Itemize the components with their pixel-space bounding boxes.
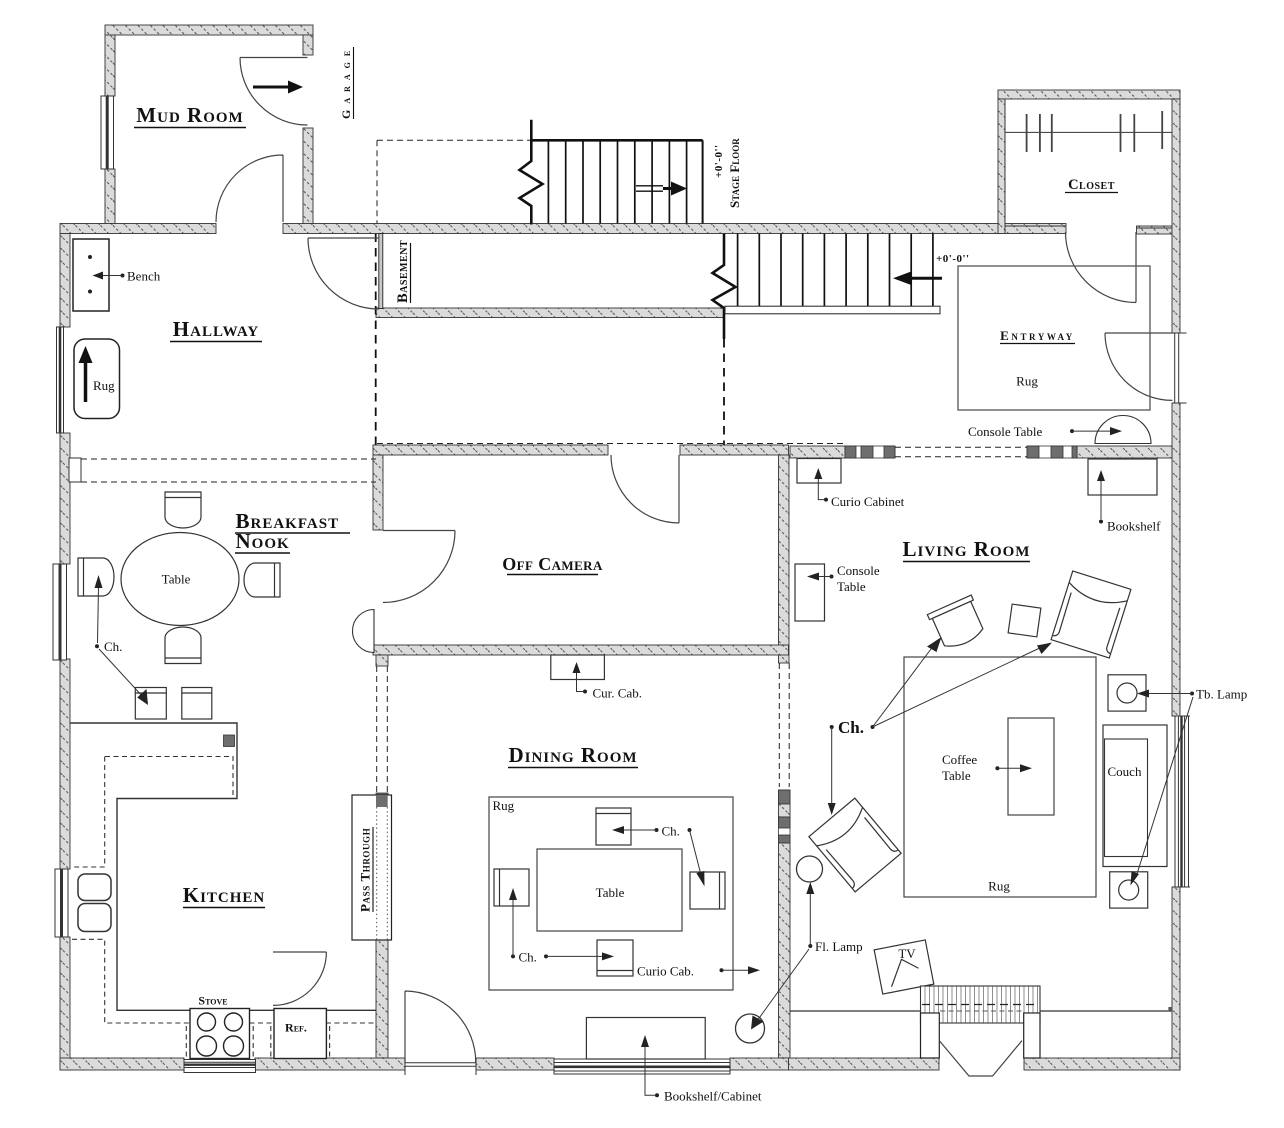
svg-text:Console: Console — [837, 563, 880, 578]
svg-text:Table: Table — [162, 572, 191, 587]
svg-text:Bookshelf/Cabinet: Bookshelf/Cabinet — [664, 1089, 762, 1104]
svg-text:Curio Cabinet: Curio Cabinet — [831, 494, 905, 509]
svg-text:Nook: Nook — [236, 529, 290, 553]
svg-text:Stage Floor: Stage Floor — [727, 138, 742, 208]
svg-text:Garage: Garage — [339, 45, 353, 119]
svg-text:Off Camera: Off Camera — [502, 554, 603, 574]
svg-text:Kitchen: Kitchen — [183, 883, 266, 907]
svg-text:Couch: Couch — [1108, 764, 1142, 779]
svg-text:Hallway: Hallway — [173, 317, 259, 341]
svg-text:Stove: Stove — [198, 994, 227, 1008]
svg-text:Rug: Rug — [988, 879, 1010, 894]
svg-text:Console Table: Console Table — [968, 424, 1043, 439]
svg-text:Ref.: Ref. — [285, 1021, 307, 1035]
svg-text:Table: Table — [596, 885, 625, 900]
svg-text:Fl. Lamp: Fl. Lamp — [815, 939, 863, 954]
svg-text:TV: TV — [898, 946, 916, 961]
svg-text:Coffee: Coffee — [942, 752, 977, 767]
svg-text:Living Room: Living Room — [903, 537, 1031, 561]
svg-text:Ch.: Ch. — [838, 718, 864, 737]
svg-text:Table: Table — [837, 579, 866, 594]
svg-text:Cur. Cab.: Cur. Cab. — [593, 686, 642, 701]
svg-text:Pass Through: Pass Through — [358, 828, 373, 912]
svg-text:Rug: Rug — [1016, 374, 1038, 389]
svg-text:Closet: Closet — [1068, 177, 1115, 193]
svg-text:+0'-0'': +0'-0'' — [936, 253, 970, 265]
svg-text:Entryway: Entryway — [1000, 328, 1075, 343]
svg-text:Bench: Bench — [127, 269, 161, 284]
svg-text:Table: Table — [942, 768, 971, 783]
svg-text:Ch.: Ch. — [519, 950, 537, 965]
svg-text:Bookshelf: Bookshelf — [1107, 519, 1161, 534]
svg-text:+0'-0'': +0'-0'' — [713, 144, 725, 178]
svg-text:Mud Room: Mud Room — [136, 103, 243, 127]
svg-text:Dining Room: Dining Room — [508, 743, 637, 767]
svg-text:Tb. Lamp: Tb. Lamp — [1196, 687, 1247, 702]
svg-text:Rug: Rug — [493, 798, 515, 813]
svg-text:Rug: Rug — [93, 378, 115, 393]
svg-text:Ch.: Ch. — [104, 639, 122, 654]
svg-text:Curio Cab.: Curio Cab. — [637, 964, 694, 979]
svg-text:Basement: Basement — [395, 240, 411, 303]
svg-text:Ch.: Ch. — [662, 824, 680, 839]
